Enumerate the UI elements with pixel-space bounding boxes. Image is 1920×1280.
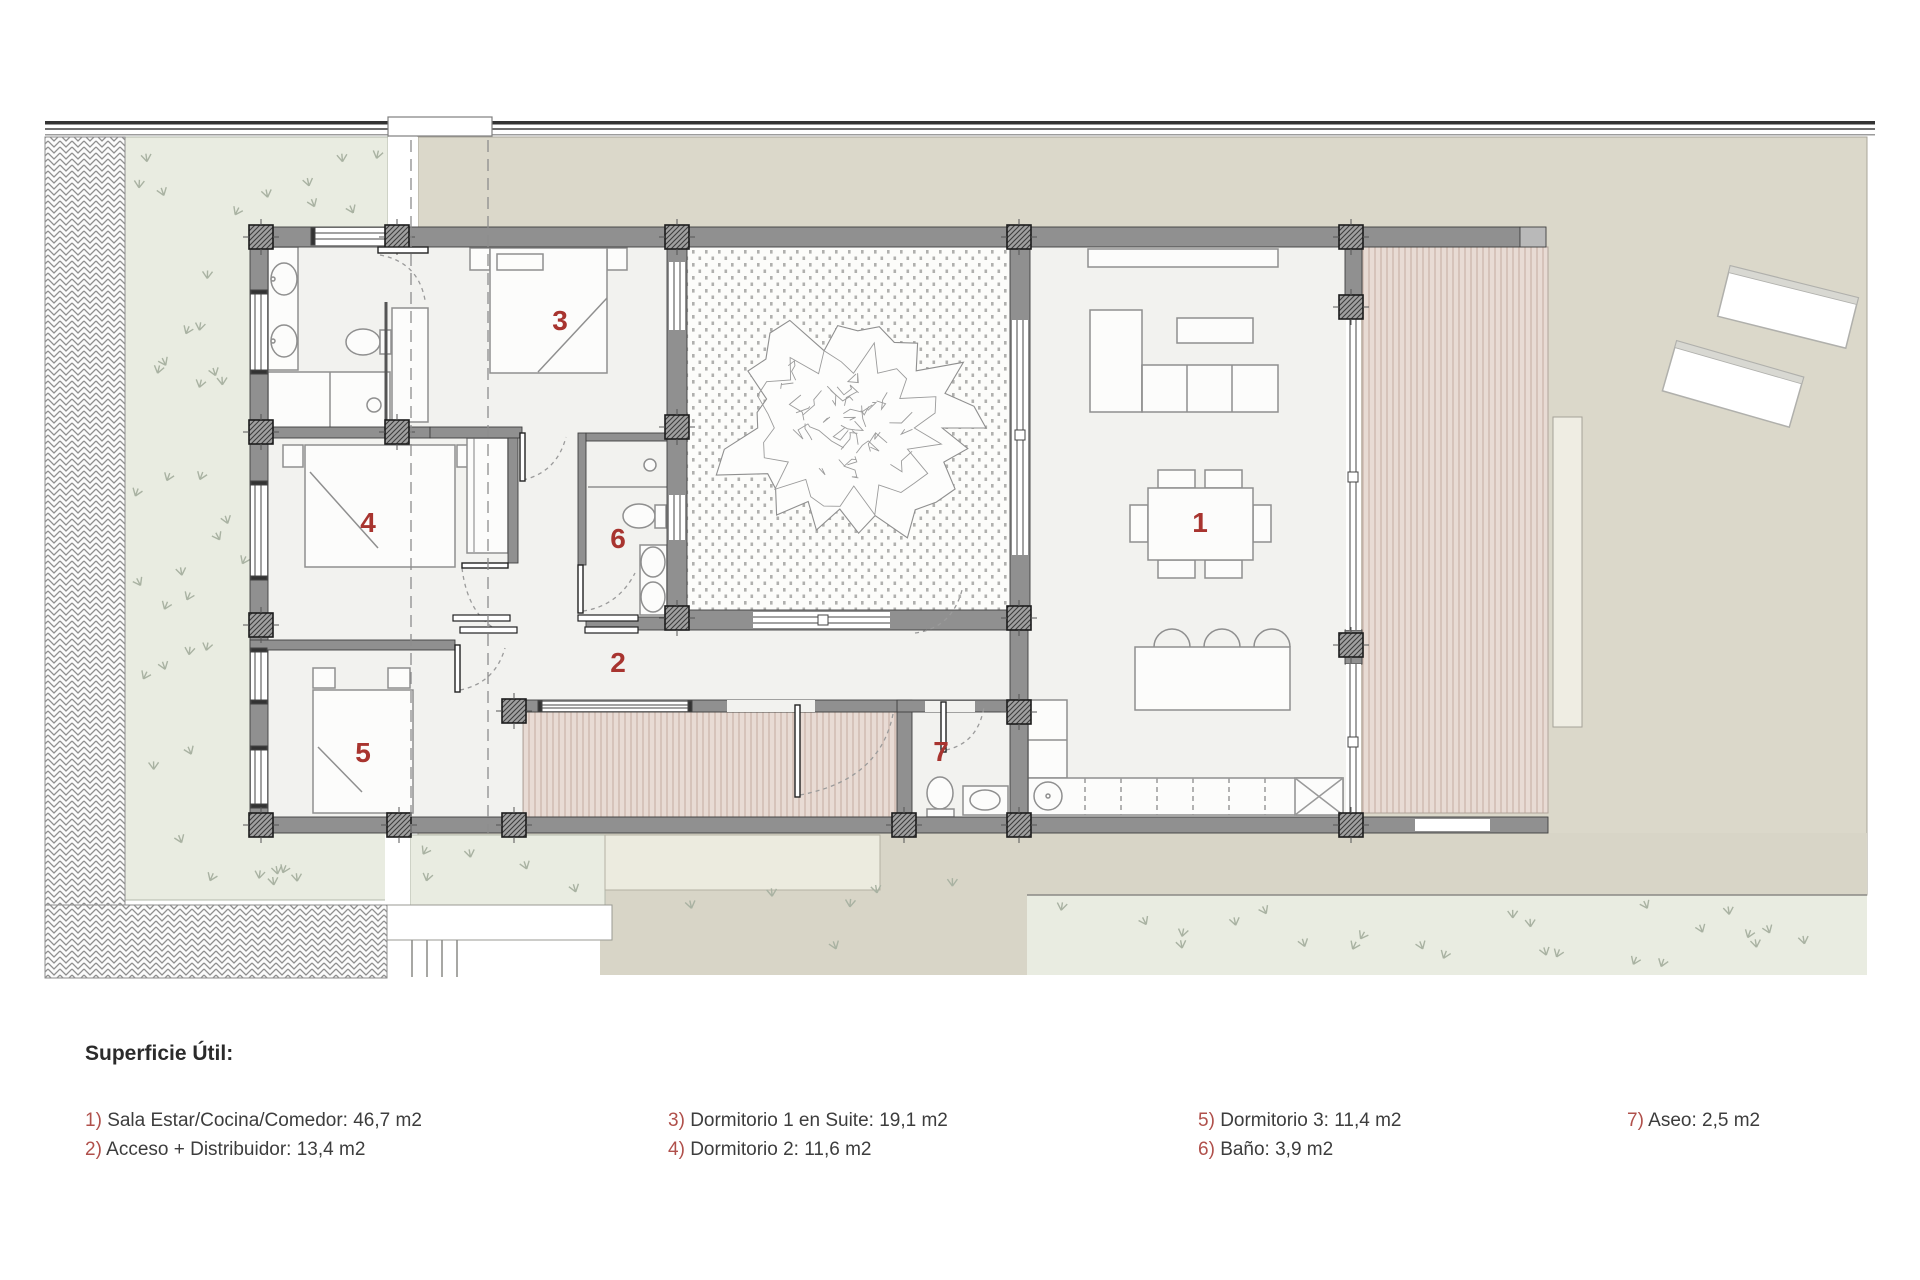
door-leaf-bath6 (578, 565, 583, 613)
bed-dormitorio-2 (283, 445, 477, 567)
column (892, 813, 916, 837)
courtyard (687, 247, 1010, 610)
legend-item-1: 1) Sala Estar/Cocina/Comedor: 46,7 m2 (85, 1106, 422, 1135)
legend-column-2: 3) Dormitorio 1 en Suite: 19,1 m2 4) Dor… (668, 1106, 948, 1164)
column (385, 420, 409, 444)
bed-dormitorio-1 (470, 248, 627, 373)
window-living-east (1346, 317, 1361, 817)
room-label-6: 6 (610, 523, 626, 554)
driveway-paving-strip (45, 137, 125, 978)
room-label-3: 3 (552, 305, 568, 336)
door-leaf-room5 (455, 645, 460, 692)
legend: Superficie Útil: 1) Sala Estar/Cocina/Co… (85, 1042, 1875, 1106)
window-dorm3-west-2 (251, 746, 267, 808)
column (1339, 633, 1363, 657)
window-ensuite-west (251, 290, 267, 374)
column (1339, 225, 1363, 249)
window-dorm3-west-1 (251, 648, 267, 704)
grass-patch-south (410, 835, 605, 905)
column (1339, 813, 1363, 837)
room-label-5: 5 (355, 737, 371, 768)
door-leaf-room4 (462, 563, 508, 568)
legend-item-7: 7) Aseo: 2,5 m2 (1627, 1106, 1760, 1135)
driveway-paving-patch (45, 905, 387, 978)
wall-deck-north (1362, 227, 1520, 247)
column (1007, 813, 1031, 837)
wall-bath6-west (578, 433, 586, 565)
column (1339, 295, 1363, 319)
column (1007, 700, 1031, 724)
room-label-2: 2 (610, 647, 626, 678)
wall-room4-east (508, 438, 518, 563)
column (249, 420, 273, 444)
terrace-white-south (385, 905, 612, 940)
wall-room3-hall (430, 427, 522, 438)
exterior-steps (412, 940, 457, 977)
window-dorm2-west (251, 481, 267, 580)
legend-item-3: 3) Dormitorio 1 en Suite: 19,1 m2 (668, 1106, 948, 1135)
coffee-table (1177, 318, 1253, 343)
column (665, 606, 689, 630)
door-leaf-entrance (795, 705, 800, 797)
door-leaf-room3 (520, 433, 525, 481)
legend-column-4: 7) Aseo: 2,5 m2 (1627, 1106, 1760, 1135)
entrance-gate (388, 117, 492, 136)
deck-east (1362, 247, 1548, 813)
window-courtyard-south (753, 612, 890, 628)
ensuite-toilet (346, 329, 391, 355)
terrace-offwhite-south (605, 835, 880, 890)
column (502, 699, 526, 723)
wall-kitchen-divider (1010, 630, 1028, 833)
column (665, 225, 689, 249)
legend-item-5: 5) Dormitorio 3: 11,4 m2 (1198, 1106, 1401, 1135)
wall-room5-north (250, 640, 455, 650)
column (249, 225, 273, 249)
legend-column-3: 5) Dormitorio 3: 11,4 m2 6) Baño: 3,9 m2 (1198, 1106, 1401, 1164)
column (387, 813, 411, 837)
legend-item-2: 2) Acceso + Distribuidor: 13,4 m2 (85, 1135, 422, 1164)
wall-north (250, 227, 1362, 247)
window-porch-south (538, 701, 692, 712)
tv-cabinet (1088, 249, 1278, 267)
column (249, 813, 273, 837)
wall-aseo-west (897, 700, 912, 817)
window-courtyard-east (1012, 320, 1028, 555)
ensuite-shower-counter (268, 372, 390, 430)
column (1007, 225, 1031, 249)
deck-entrance-porch (523, 712, 897, 817)
wardrobe-dormitorio-1 (386, 302, 428, 425)
column (1007, 606, 1031, 630)
room-label-4: 4 (360, 507, 376, 538)
column (385, 225, 409, 249)
walkway-south-gap (385, 835, 410, 905)
column (249, 613, 273, 637)
site-boundary-fence (45, 117, 1875, 136)
wall-bath6-north (586, 433, 667, 441)
legend-item-4: 4) Dormitorio 2: 11,6 m2 (668, 1135, 948, 1164)
floor-plan-sheet: 1 2 3 4 5 6 7 Superficie Útil: 1) Sala E… (0, 0, 1920, 1280)
legend-item-6: 6) Baño: 3,9 m2 (1198, 1135, 1401, 1164)
column (502, 813, 526, 837)
legend-title: Superficie Útil: (85, 1042, 1875, 1066)
garden-grass-bottom-right (1027, 895, 1867, 975)
ensuite-vanity (268, 247, 298, 370)
legend-column-1: 1) Sala Estar/Cocina/Comedor: 46,7 m2 2)… (85, 1106, 422, 1164)
room-label-1: 1 (1192, 507, 1208, 538)
planter-strip-east (1553, 417, 1582, 727)
walkway-top (388, 137, 418, 227)
door-leaf-ensuite (378, 247, 428, 253)
column (665, 415, 689, 439)
room-label-7: 7 (933, 736, 949, 767)
